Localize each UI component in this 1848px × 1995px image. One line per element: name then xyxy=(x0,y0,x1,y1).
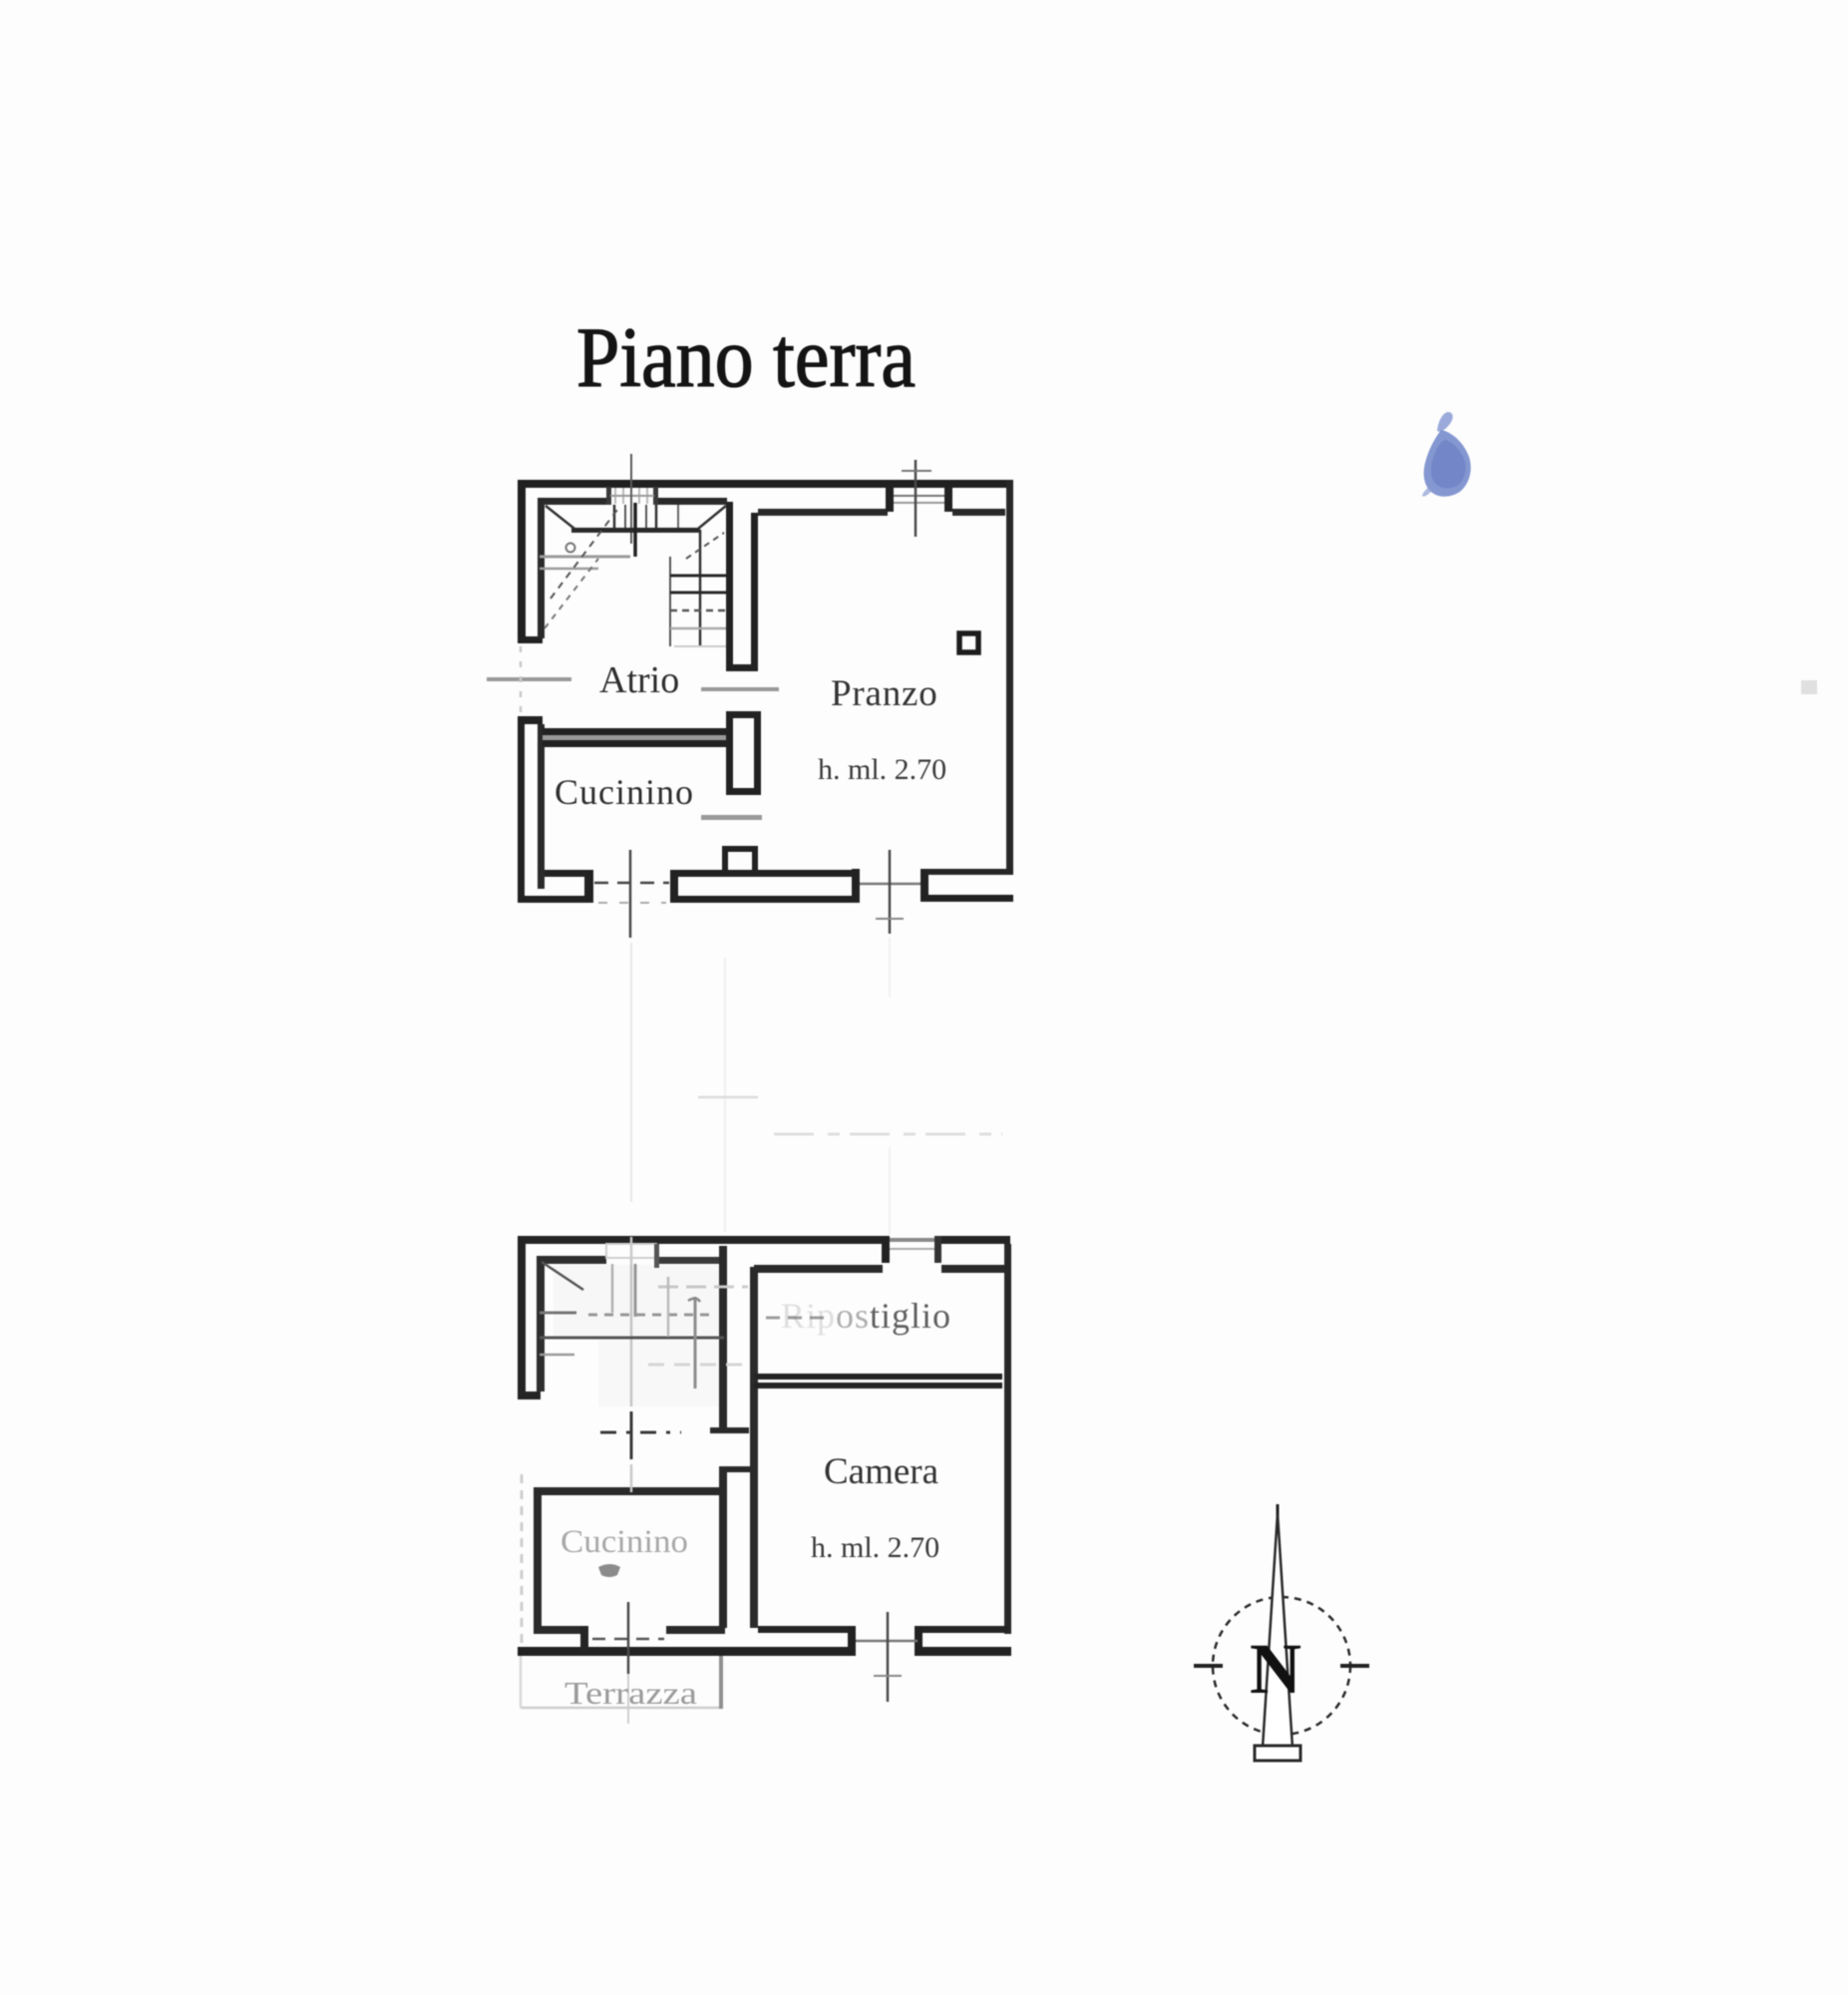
svg-text:Ripostiglio: Ripostiglio xyxy=(781,1296,951,1336)
svg-text:Cucinino: Cucinino xyxy=(554,772,694,812)
svg-text:Pranzo: Pranzo xyxy=(831,673,938,714)
svg-text:N: N xyxy=(1250,1629,1301,1709)
svg-text:h. ml. 2.70: h. ml. 2.70 xyxy=(811,1531,939,1564)
svg-text:Camera: Camera xyxy=(824,1451,938,1492)
svg-text:h. ml. 2.70: h. ml. 2.70 xyxy=(818,753,946,786)
svg-text:Terrazza: Terrazza xyxy=(564,1675,697,1711)
svg-text:Atrio: Atrio xyxy=(599,659,679,701)
svg-text:Cucinino: Cucinino xyxy=(560,1524,688,1560)
svg-text:Piano terra: Piano terra xyxy=(576,309,916,405)
